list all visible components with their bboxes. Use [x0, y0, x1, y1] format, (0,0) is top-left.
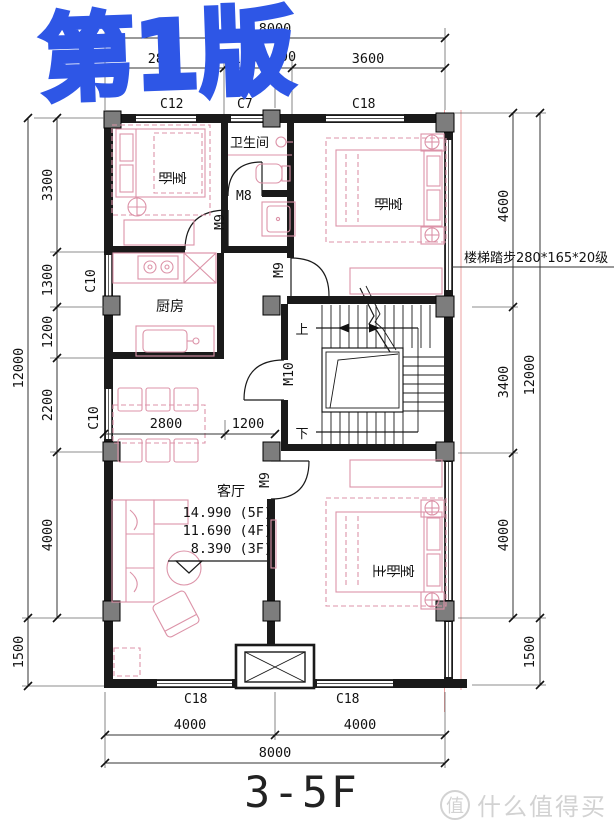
bed-master	[326, 498, 446, 609]
site-watermark: 值 什么值得买	[440, 787, 607, 822]
bed-top-left	[112, 125, 210, 216]
dim-left-seg-3300: 3300	[40, 169, 56, 202]
window-c7	[231, 115, 264, 123]
entry-shaft	[236, 645, 314, 688]
staircase: 上 下	[295, 286, 444, 444]
window-tag-c18-bottom-right: C18	[336, 692, 359, 707]
sheet-title: 3-5F	[212, 768, 392, 818]
door-tag-m9-bedroom1: M9	[213, 214, 228, 230]
stair-down-label: 下	[295, 427, 308, 442]
elevation-5f: 14.990 (5F)	[183, 505, 272, 521]
walls	[104, 114, 467, 688]
room-label-bedroom1: 卧室	[156, 171, 187, 185]
flue-shaft	[184, 253, 216, 283]
dim-bottom-overall: 8000	[259, 745, 292, 761]
door-m9-master	[271, 461, 309, 499]
dimensions-bottom: 4000 4000 8000	[101, 692, 449, 768]
dimensions-left: 3300 1300 1200 2200 4000 12000 1500	[11, 114, 104, 690]
dim-right-porch-1500: 1500	[522, 636, 538, 669]
dimensions-interior: 2800 1200	[100, 416, 279, 440]
dim-bottom-seg-4000a: 4000	[174, 717, 207, 733]
room-label-bathroom: 卫生间	[230, 136, 269, 151]
door-m10-stairs	[244, 360, 284, 400]
wardrobe-master	[350, 460, 442, 487]
elevation-3f: 8.390 (3F)	[191, 541, 272, 557]
window-c18-top	[326, 115, 404, 123]
door-tag-m9-master: M9	[258, 472, 273, 488]
sofa	[112, 500, 154, 602]
door-tag-m8: M8	[236, 189, 252, 204]
dim-left-seg-1300: 1300	[40, 264, 56, 297]
window-tag-c18-top: C18	[352, 97, 375, 112]
floor-plan-sheet: 上 下	[0, 0, 614, 824]
floor-plan-drawing: 上 下	[0, 0, 614, 824]
window-tag-c18-bottom-left: C18	[184, 692, 207, 707]
bed-top-right	[326, 134, 446, 244]
porch-planter	[114, 648, 140, 676]
armchair	[152, 590, 201, 639]
opening-tags: C12 C7 C18 C10 C10 C18 C18 M8 M9 M9 M10 …	[84, 97, 375, 707]
elevation-4f: 11.690 (4F)	[183, 523, 272, 539]
dim-right-seg-4600: 4600	[496, 190, 512, 223]
room-label-kitchen: 厨房	[156, 299, 184, 315]
wardrobe-bedroom1	[124, 220, 194, 245]
room-label-master: 主卧室	[370, 564, 415, 578]
dim-interior-1200: 1200	[232, 416, 265, 432]
door-tag-m10: M10	[282, 362, 297, 385]
door-m9-bedroom2	[291, 258, 329, 296]
stair-note: 楼梯踏步280*165*20级	[452, 251, 614, 267]
window-right-porch	[445, 622, 453, 677]
dim-right-seg-3400: 3400	[496, 366, 512, 399]
stair-note-text: 楼梯踏步280*165*20级	[464, 251, 608, 266]
dim-bottom-seg-4000b: 4000	[344, 717, 377, 733]
dim-interior-2800: 2800	[150, 416, 183, 432]
window-tag-c10-lower: C10	[87, 406, 102, 429]
dim-left-seg-4000: 4000	[40, 519, 56, 552]
dim-right-overall: 12000	[522, 355, 538, 396]
dim-left-porch-1500: 1500	[11, 636, 27, 669]
stair-handrail	[330, 354, 398, 408]
window-c18-bottom-left	[157, 680, 232, 688]
stair-up-label: 上	[295, 323, 308, 338]
room-label-bedroom2: 卧室	[372, 197, 403, 211]
dimensions-right: 4600 3400 4000 12000 1500	[455, 109, 546, 689]
window-c10-upper	[105, 255, 113, 297]
room-label-living: 客厅	[217, 483, 245, 500]
site-watermark-text: 什么值得买	[477, 787, 607, 822]
dim-left-seg-2200: 2200	[40, 389, 56, 422]
dim-left-overall: 12000	[11, 348, 27, 389]
dim-left-seg-1200: 1200	[40, 316, 56, 349]
kitchen-sink	[143, 330, 187, 352]
elevation-triangle-icon	[176, 561, 202, 573]
elevation-marker: 14.990 (5F) 11.690 (4F) 8.390 (3F)	[168, 505, 272, 573]
structural-columns	[103, 110, 454, 621]
edition-watermark: 第1版	[38, 0, 296, 120]
wardrobe-bedroom2	[350, 268, 442, 294]
dim-right-seg-4000: 4000	[496, 519, 512, 552]
dim-top-seg-3600: 3600	[352, 51, 385, 67]
window-c18-bottom-right	[317, 680, 393, 688]
site-watermark-badge-icon: 值	[440, 790, 470, 820]
toilet	[256, 164, 282, 183]
door-tag-m9-bedroom2: M9	[272, 262, 287, 278]
bathroom-heater-icon	[276, 137, 286, 147]
window-tag-c10-upper: C10	[84, 269, 99, 292]
